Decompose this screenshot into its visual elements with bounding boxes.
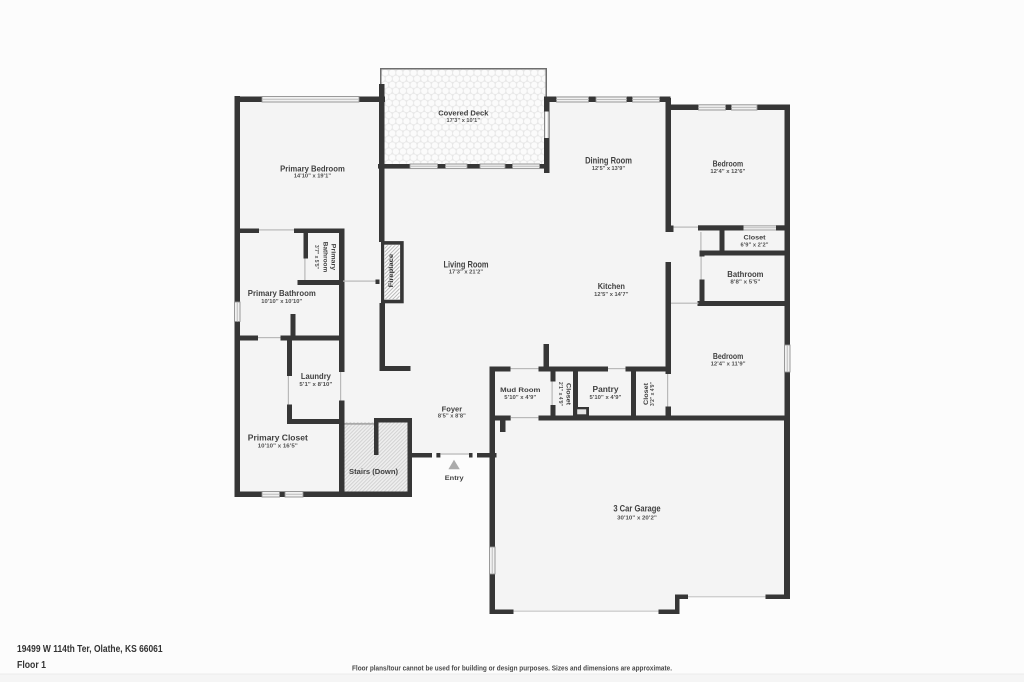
svg-text:17’3” x 21’2”: 17’3” x 21’2”: [449, 269, 484, 275]
svg-text:6’9” x 2’2”: 6’9” x 2’2”: [741, 243, 769, 249]
svg-text:5’10” x 4’9”: 5’10” x 4’9”: [590, 395, 622, 401]
svg-text:Primary: Primary: [330, 244, 337, 271]
svg-text:Kitchen: Kitchen: [598, 282, 625, 291]
svg-text:Living Room: Living Room: [443, 259, 488, 269]
svg-text:Pantry: Pantry: [593, 385, 620, 394]
svg-text:Stairs (Down): Stairs (Down): [349, 469, 398, 476]
svg-text:Bedroom: Bedroom: [713, 159, 744, 168]
svg-text:Bedroom: Bedroom: [713, 352, 744, 361]
svg-text:Closet: Closet: [744, 235, 767, 242]
svg-text:5’1” x 8’10”: 5’1” x 8’10”: [299, 382, 332, 388]
svg-text:2’1” x 4’9”: 2’1” x 4’9”: [557, 382, 563, 406]
svg-text:12’4” x 12’6”: 12’4” x 12’6”: [710, 169, 745, 175]
svg-text:Primary Bedroom: Primary Bedroom: [280, 163, 345, 173]
svg-text:17’3” x 10’1”: 17’3” x 10’1”: [447, 118, 481, 124]
svg-text:Mud Room: Mud Room: [500, 387, 540, 394]
svg-text:3 Car Garage: 3 Car Garage: [613, 503, 660, 513]
svg-text:5’10” x 4’9”: 5’10” x 4’9”: [504, 395, 536, 401]
svg-text:Dining Room: Dining Room: [585, 155, 632, 165]
svg-text:8’8” x 5’5”: 8’8” x 5’5”: [730, 279, 760, 285]
svg-text:8’5” x 8’8”: 8’5” x 8’8”: [438, 414, 466, 420]
svg-text:30’10” x 20’2”: 30’10” x 20’2”: [617, 516, 657, 522]
svg-text:14’10” x 19’1”: 14’10” x 19’1”: [294, 174, 332, 180]
svg-text:12’5” x 14’7”: 12’5” x 14’7”: [594, 292, 629, 298]
svg-text:Entry: Entry: [445, 475, 464, 482]
svg-text:Closet: Closet: [643, 382, 650, 405]
svg-text:Floor plans/tour cannot be use: Floor plans/tour cannot be used for buil…: [352, 666, 672, 673]
svg-text:3’7” x 5’5”: 3’7” x 5’5”: [313, 245, 319, 269]
svg-text:12’5” x 13’9”: 12’5” x 13’9”: [592, 166, 626, 172]
svg-text:10’10” x 10’10”: 10’10” x 10’10”: [261, 299, 302, 305]
svg-text:Floor 1: Floor 1: [17, 660, 46, 671]
svg-text:Bathroom: Bathroom: [322, 242, 329, 272]
svg-text:Primary Closet: Primary Closet: [248, 434, 308, 443]
svg-text:3’2” x 4’9”: 3’2” x 4’9”: [650, 382, 656, 406]
svg-text:10’10” x 16’5”: 10’10” x 16’5”: [258, 444, 298, 450]
svg-text:Primary Bathroom: Primary Bathroom: [248, 289, 316, 298]
svg-text:Closet: Closet: [565, 383, 572, 406]
svg-text:Covered Deck: Covered Deck: [438, 109, 489, 118]
svg-text:Laundry: Laundry: [301, 372, 332, 381]
svg-text:19499 W 114th Ter, Olathe, KS: 19499 W 114th Ter, Olathe, KS 66061: [17, 644, 163, 655]
svg-text:Foyer: Foyer: [442, 404, 463, 413]
svg-text:Fireplace: Fireplace: [388, 253, 395, 287]
svg-text:12’4” x 11’9”: 12’4” x 11’9”: [711, 362, 746, 368]
svg-text:Bathroom: Bathroom: [727, 270, 763, 279]
